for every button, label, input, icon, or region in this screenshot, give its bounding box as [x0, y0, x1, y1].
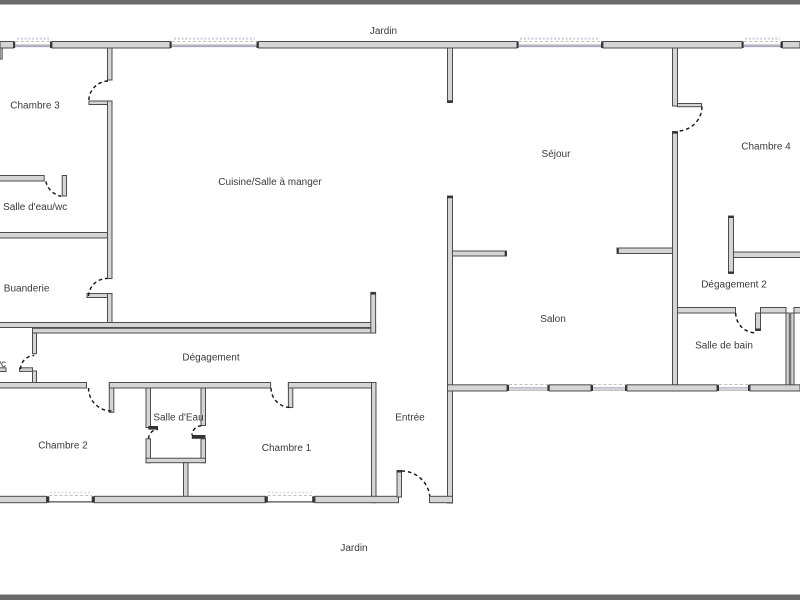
svg-text:Chambre 1: Chambre 1 — [262, 443, 312, 454]
svg-text:Dégagement: Dégagement — [182, 353, 239, 364]
svg-text:Cuisine/Salle à manger: Cuisine/Salle à manger — [218, 177, 322, 188]
svg-text:Jardin: Jardin — [370, 26, 397, 37]
svg-text:Salle de bain: Salle de bain — [695, 341, 753, 352]
svg-text:Entrée: Entrée — [395, 413, 425, 424]
svg-text:Salle d'eau/wc: Salle d'eau/wc — [3, 202, 67, 213]
svg-text:Chambre 2: Chambre 2 — [38, 441, 88, 452]
svg-text:Salon: Salon — [540, 314, 566, 325]
svg-text:Buanderie: Buanderie — [4, 284, 50, 295]
svg-text:wc: wc — [0, 359, 6, 370]
svg-text:Dégagement 2: Dégagement 2 — [701, 280, 767, 291]
svg-text:Chambre 4: Chambre 4 — [741, 142, 791, 153]
svg-text:Séjour: Séjour — [542, 149, 572, 160]
svg-text:Chambre 3: Chambre 3 — [10, 101, 60, 112]
svg-text:Jardin: Jardin — [340, 543, 367, 554]
svg-text:Salle d'Eau: Salle d'Eau — [153, 413, 203, 424]
